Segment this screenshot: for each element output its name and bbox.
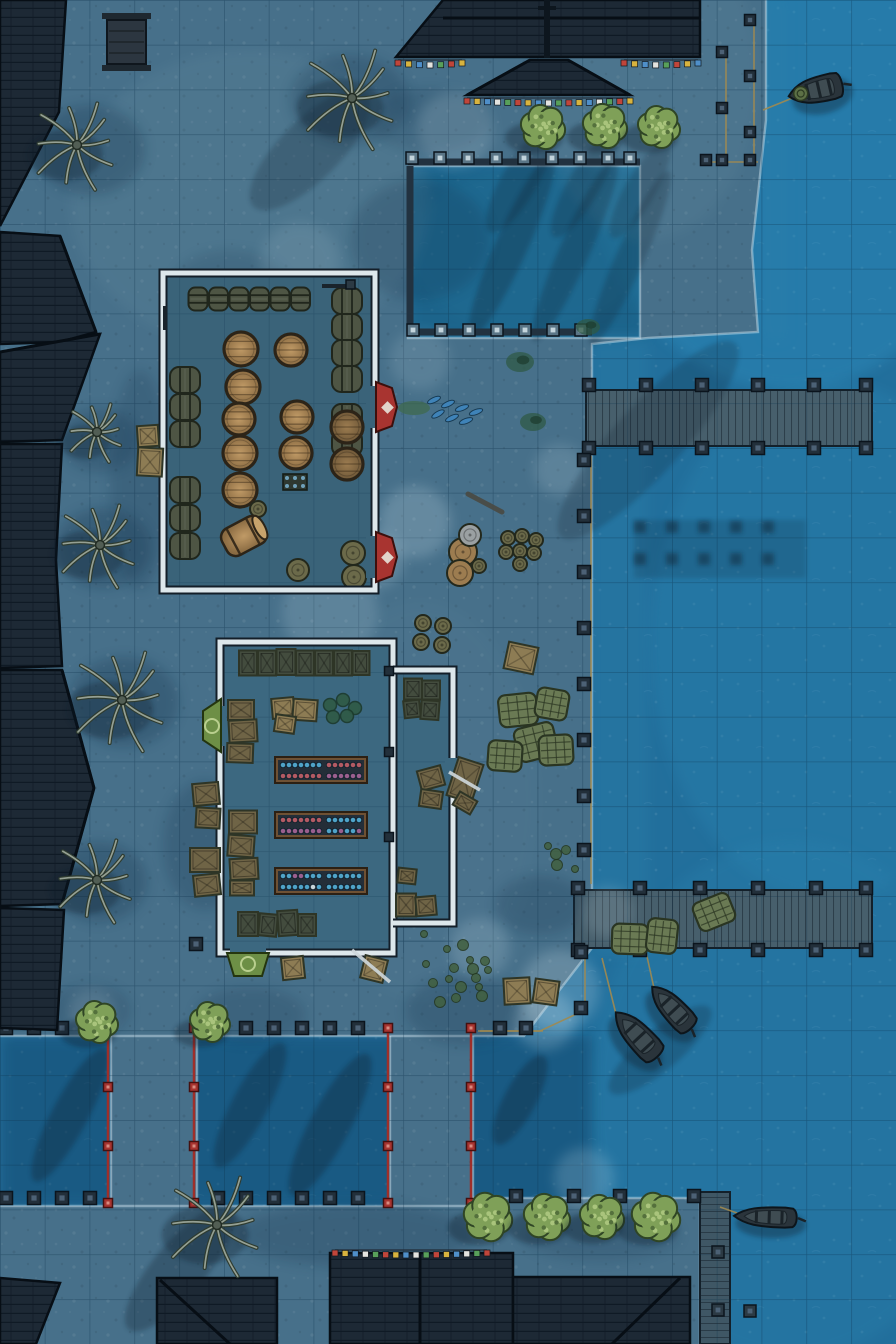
- roof: [157, 1278, 277, 1344]
- wooden-vat: [223, 436, 257, 470]
- crate: [277, 910, 299, 936]
- barrel: [170, 533, 200, 559]
- barrel: [170, 367, 200, 393]
- battle-map: [0, 0, 896, 1344]
- barrel-top: [341, 541, 365, 565]
- wooden-vat: [275, 334, 307, 366]
- roof: [0, 908, 64, 1030]
- crate: [422, 681, 440, 700]
- barrel: [230, 288, 249, 311]
- wooden-vat: [281, 401, 313, 433]
- wooden-vat: [226, 370, 260, 404]
- crate: [227, 835, 254, 858]
- crate: [397, 868, 416, 885]
- cargo-bale: [497, 692, 538, 728]
- barrel-top: [527, 546, 541, 560]
- crate: [239, 651, 257, 676]
- barrel: [332, 366, 362, 392]
- crate: [419, 789, 443, 809]
- dark-vat: [331, 411, 363, 443]
- barrel: [170, 505, 200, 531]
- crate: [315, 651, 333, 676]
- crate: [532, 978, 559, 1005]
- wooden-vat: [223, 473, 257, 507]
- barrel: [271, 288, 290, 311]
- barrel-top: [499, 545, 513, 559]
- barrel-top: [459, 524, 481, 546]
- cargo-bale: [538, 734, 574, 766]
- barrel: [170, 394, 200, 420]
- crate: [274, 714, 296, 734]
- crate: [396, 894, 416, 917]
- barrel: [170, 477, 200, 503]
- crate: [229, 858, 258, 880]
- crate: [503, 977, 530, 1004]
- crate: [296, 651, 314, 676]
- crate: [258, 651, 276, 676]
- barrel-top: [513, 544, 527, 558]
- crate: [258, 913, 278, 936]
- green-awning-south: [227, 953, 269, 976]
- crate: [227, 743, 254, 763]
- crate: [230, 881, 254, 896]
- crate: [228, 700, 254, 720]
- crate: [281, 956, 305, 980]
- crate: [238, 912, 258, 936]
- crate: [228, 719, 257, 742]
- barrel: [170, 421, 200, 447]
- barrel: [209, 288, 228, 311]
- fish-tray: [283, 474, 307, 490]
- barrel-top: [515, 529, 529, 543]
- crate: [229, 811, 257, 834]
- roof: [330, 1250, 513, 1344]
- barrel-top: [529, 533, 543, 547]
- crate: [137, 425, 159, 447]
- crate: [190, 848, 220, 872]
- barrel: [332, 314, 362, 340]
- crate: [137, 447, 163, 476]
- barrel-top: [501, 531, 515, 545]
- crate: [195, 807, 220, 828]
- wooden-cart: [102, 13, 151, 71]
- barrel-top: [250, 501, 266, 517]
- crate: [403, 700, 421, 719]
- barrel-top: [513, 557, 527, 571]
- barrel: [291, 288, 310, 311]
- crate: [193, 873, 221, 897]
- barrel: [332, 340, 362, 366]
- fish-stall-table: [275, 812, 367, 838]
- barrel: [332, 288, 362, 314]
- warehouse-building: [163, 273, 397, 590]
- roof: [513, 1277, 690, 1344]
- wooden-vat: [280, 437, 312, 469]
- fish-stall-table: [275, 757, 367, 783]
- crate: [420, 700, 439, 720]
- barrel-top: [447, 560, 473, 586]
- crate: [415, 896, 437, 917]
- cargo-bale: [611, 923, 648, 954]
- map-canvas: [0, 0, 896, 1344]
- crate: [298, 914, 316, 936]
- crate: [404, 679, 422, 700]
- cargo-bale: [645, 918, 678, 955]
- barrel: [189, 288, 208, 311]
- crate: [277, 649, 296, 675]
- barrel-top: [413, 634, 429, 650]
- fish-stall-table: [275, 868, 367, 894]
- cargo-bale: [487, 740, 523, 772]
- barrel-top: [415, 615, 431, 631]
- crate: [192, 782, 220, 806]
- barrel-top: [342, 565, 366, 589]
- crate: [504, 642, 539, 675]
- crate: [334, 651, 352, 676]
- barrel-top: [287, 559, 309, 581]
- crate: [353, 651, 370, 675]
- barrel-top: [435, 618, 451, 634]
- barrel: [250, 288, 269, 311]
- wooden-vat: [224, 332, 258, 366]
- wooden-vat: [223, 403, 255, 435]
- cargo-bale: [534, 686, 571, 721]
- barrel-top: [434, 637, 450, 653]
- dark-vat: [331, 448, 363, 480]
